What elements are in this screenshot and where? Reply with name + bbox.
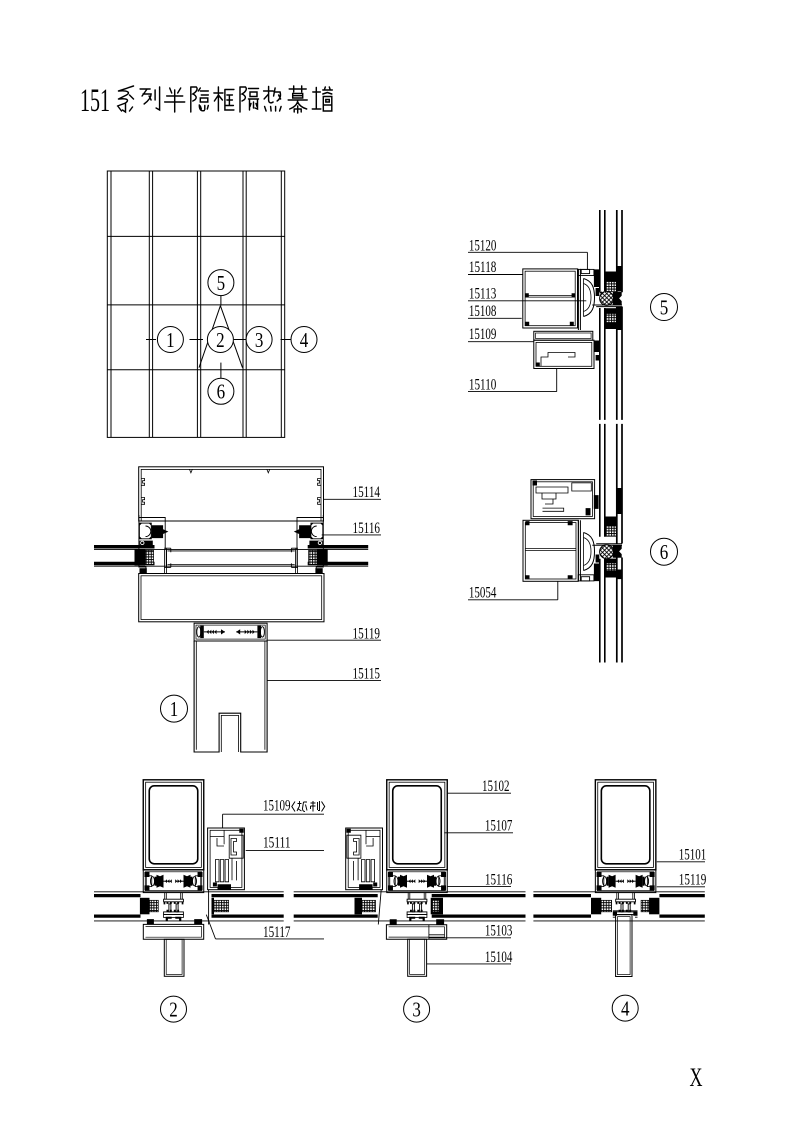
svg-text:5: 5 [660,295,669,319]
svg-text:4: 4 [621,996,630,1020]
svg-text:151: 151 [80,83,110,119]
svg-text:3: 3 [255,328,264,352]
svg-text:6: 6 [217,380,226,404]
svg-text:15108: 15108 [469,303,497,320]
svg-text:15102: 15102 [482,778,510,795]
svg-text:1: 1 [166,328,175,352]
svg-text:2: 2 [169,997,178,1021]
svg-text:15120: 15120 [469,237,497,254]
svg-text:3: 3 [412,997,421,1021]
svg-text:15119: 15119 [679,872,707,889]
svg-text:1: 1 [170,697,179,721]
svg-text:15109: 15109 [263,798,291,815]
svg-text:15113: 15113 [469,286,497,303]
svg-text:15107: 15107 [485,818,513,835]
svg-text:15101: 15101 [679,847,707,864]
svg-text:15118: 15118 [469,259,497,276]
svg-text:6: 6 [660,540,669,564]
svg-text:15103: 15103 [485,923,513,940]
svg-text:15114: 15114 [353,484,381,501]
svg-text:15110: 15110 [469,376,497,393]
svg-text:15111: 15111 [263,835,291,852]
svg-text:2: 2 [216,328,225,352]
svg-text:15109: 15109 [469,326,497,343]
svg-text:15116: 15116 [485,871,513,888]
svg-text:15117: 15117 [263,924,291,941]
svg-text:15054: 15054 [469,584,497,601]
svg-text:15104: 15104 [485,949,513,966]
svg-text:5: 5 [217,271,226,295]
svg-text:X: X [690,1063,703,1092]
svg-text:4: 4 [300,328,309,352]
